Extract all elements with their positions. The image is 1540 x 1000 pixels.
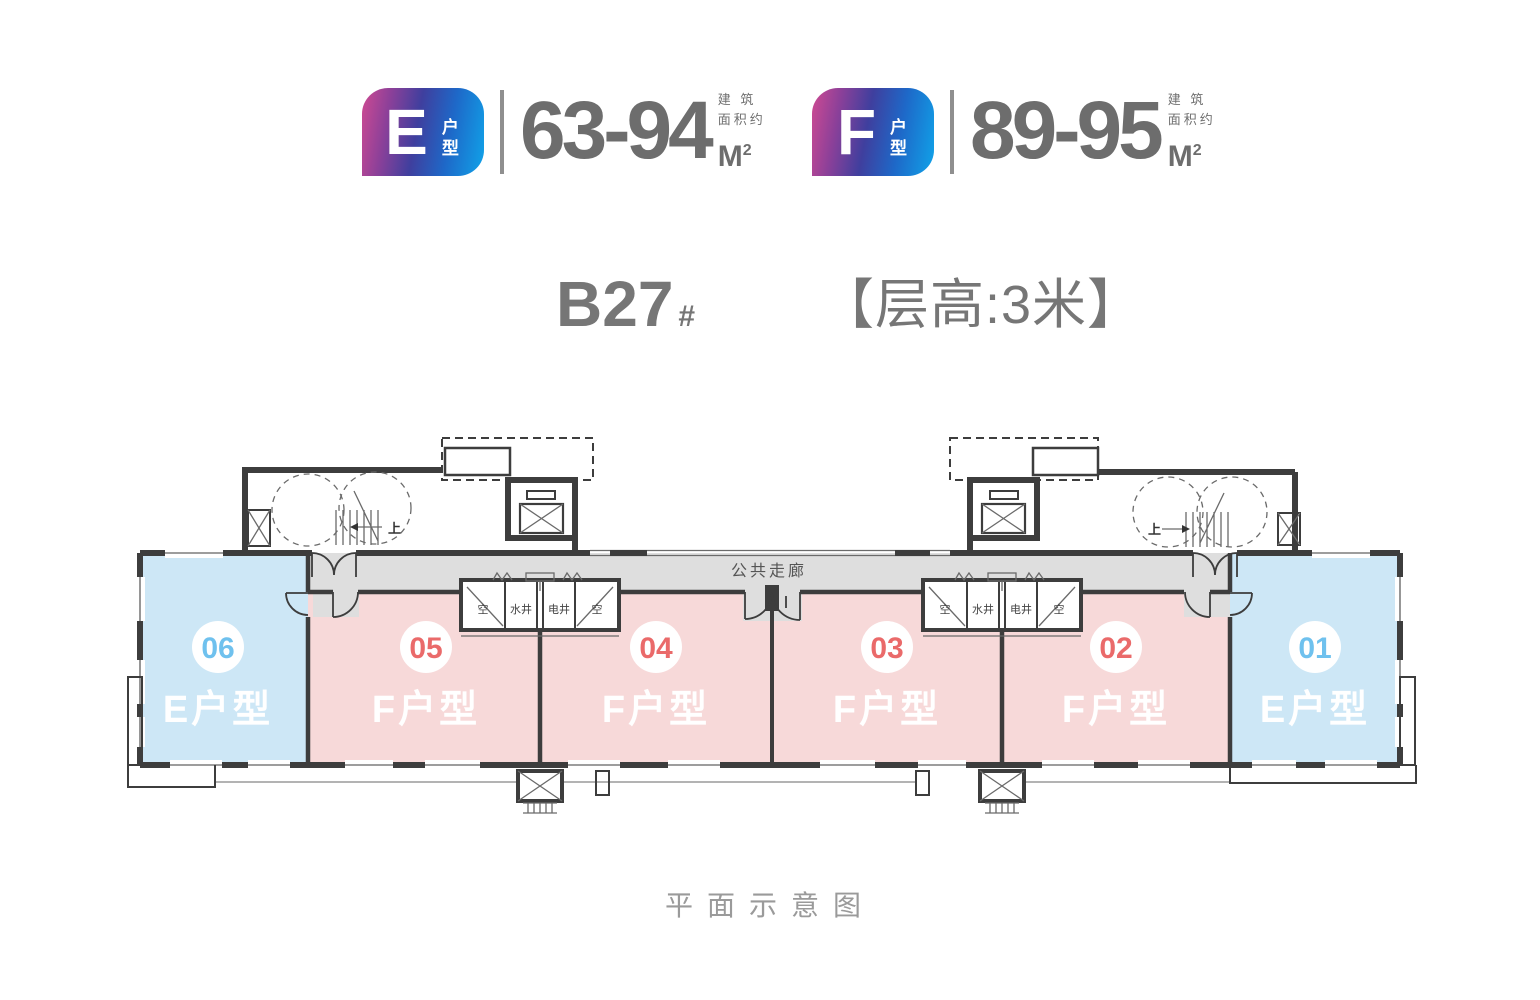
area-note-line2: 面积约	[1168, 110, 1216, 130]
unit-m: M	[718, 140, 743, 173]
unit-number: 01	[1298, 632, 1331, 665]
legend-item-f: F 户型 89-95 建 筑 面积约 M2	[812, 88, 1216, 176]
shaft-label-ac: 空	[1054, 602, 1065, 616]
badge-letter: E	[385, 100, 428, 164]
shaft-label-ac: 空	[592, 602, 603, 616]
shaft-label-ac: 空	[478, 602, 489, 616]
badge-type-label: 户型	[436, 118, 461, 160]
unit-type-label: E户型	[1260, 689, 1370, 731]
unit-m: M	[1168, 140, 1193, 173]
area-note-line1: 建 筑	[1168, 90, 1216, 110]
building-number-text: B27	[556, 268, 673, 340]
badge-type-label: 户型	[884, 118, 909, 160]
area-range-e: 63-94	[520, 88, 710, 176]
elevator-shaft	[508, 480, 575, 538]
unit-number: 03	[870, 632, 903, 665]
unit-type-label: F户型	[833, 689, 941, 731]
unit-type-e-badge: E 户型	[362, 88, 484, 176]
bottom-stub	[596, 771, 609, 795]
unit-type-f-badge: F 户型	[812, 88, 934, 176]
elevator-shaft	[970, 480, 1037, 538]
legend-item-e: E 户型 63-94 建 筑 面积约 M2	[362, 88, 766, 176]
stairs-up-label: 上	[1148, 522, 1161, 537]
shaft-label-water: 水井	[972, 602, 994, 616]
shaft-label-water: 水井	[510, 602, 532, 616]
area-note-line1: 建 筑	[718, 90, 766, 110]
area-range-f: 89-95	[970, 88, 1160, 176]
corridor-label: 公共走廊	[731, 562, 807, 580]
unit-sup: 2	[743, 142, 752, 159]
unit-type-label: E户型	[163, 689, 273, 731]
entry-recess-right	[1184, 592, 1230, 617]
floor-height-label: 【层高:3米】	[820, 278, 1142, 332]
legend-divider	[500, 90, 504, 174]
vestibule	[445, 448, 510, 475]
shaft-label-electric: 电井	[1010, 602, 1032, 616]
unit-sup: 2	[1193, 142, 1202, 159]
building-number-hash: #	[678, 300, 695, 333]
stair-core-right: 上	[950, 438, 1300, 547]
area-unit: M2	[718, 142, 766, 172]
area-unit-column: 建 筑 面积约 M2	[718, 88, 766, 176]
unit-number: 06	[201, 632, 234, 665]
area-note-line2: 面积约	[718, 110, 766, 130]
unit-number: 04	[639, 632, 673, 665]
area-note: 建 筑 面积约	[1168, 90, 1216, 130]
unit-type-label: F户型	[1062, 689, 1170, 731]
unit-number: 05	[409, 632, 442, 665]
area-note: 建 筑 面积约	[718, 90, 766, 130]
vestibule	[1033, 448, 1098, 475]
unit-type-label: F户型	[372, 689, 480, 731]
bottom-stub	[916, 771, 929, 795]
stair-direction-arrow	[350, 523, 358, 531]
plan-caption: 平面示意图	[0, 884, 1540, 924]
building-number: B27#	[556, 272, 695, 336]
stair-treads-icon	[1186, 493, 1228, 547]
shaft-label-electric: 电井	[548, 602, 570, 616]
badge-letter: F	[837, 100, 876, 164]
area-unit: M2	[1168, 142, 1216, 172]
unit-number: 02	[1099, 632, 1132, 665]
area-unit-column: 建 筑 面积约 M2	[1168, 88, 1216, 176]
stair-sweep-circle	[272, 474, 344, 546]
stair-core-left: 上	[248, 438, 593, 546]
floor-plan: 上 上 空 水井 电井 空	[120, 425, 1420, 825]
shaft-label-ac: 空	[940, 602, 951, 616]
stairs-up-label: 上	[388, 521, 401, 536]
entry-recess-left	[313, 592, 359, 617]
legend-divider	[950, 90, 954, 174]
unit-type-label: F户型	[602, 689, 710, 731]
